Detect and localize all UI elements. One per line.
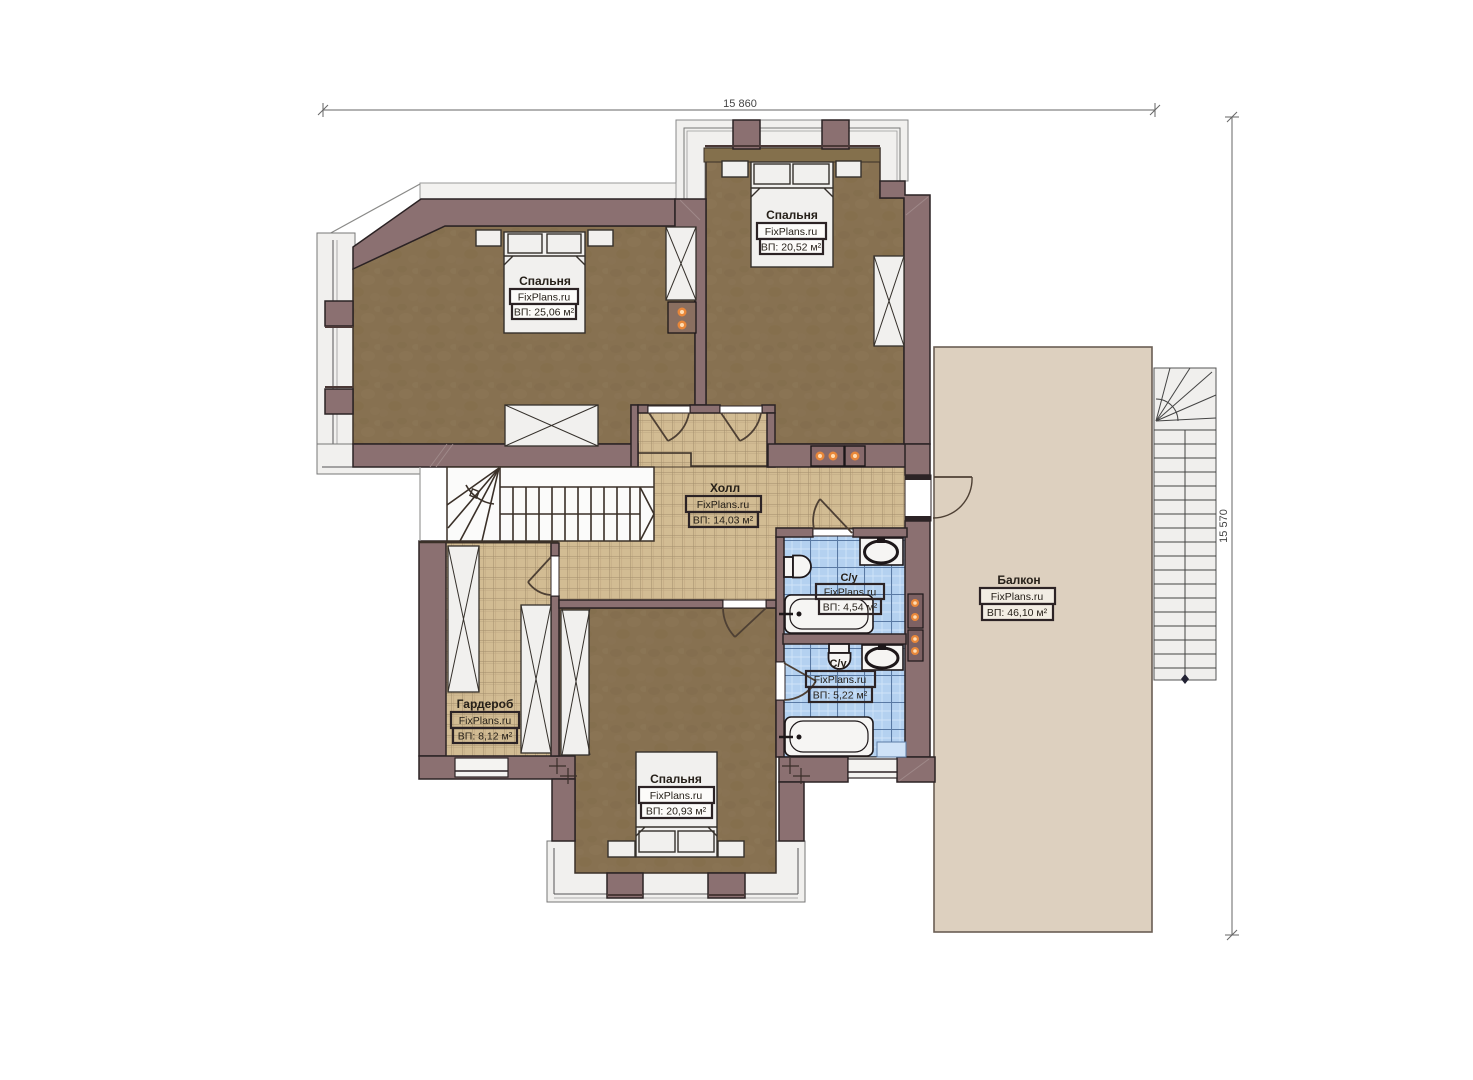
svg-text:Холл: Холл <box>710 481 740 495</box>
svg-text:ВП: 20,93 м²: ВП: 20,93 м² <box>646 806 707 818</box>
svg-text:FixPlans.ru: FixPlans.ru <box>765 226 818 238</box>
svg-text:FixPlans.ru: FixPlans.ru <box>991 591 1044 603</box>
svg-text:Спальня: Спальня <box>519 274 571 288</box>
svg-text:ВП: 14,03 м²: ВП: 14,03 м² <box>693 515 754 527</box>
svg-text:С/у: С/у <box>840 572 858 584</box>
svg-text:ВП: 5,22 м²: ВП: 5,22 м² <box>813 690 868 702</box>
svg-text:Спальня: Спальня <box>650 772 702 786</box>
svg-text:15 860: 15 860 <box>723 98 757 110</box>
svg-text:FixPlans.ru: FixPlans.ru <box>814 674 867 686</box>
svg-text:ВП: 20,52 м²: ВП: 20,52 м² <box>761 242 822 254</box>
svg-text:FixPlans.ru: FixPlans.ru <box>697 499 750 511</box>
svg-text:ВП: 4,54 м²: ВП: 4,54 м² <box>823 602 878 614</box>
svg-text:Гардероб: Гардероб <box>457 697 514 711</box>
svg-text:FixPlans.ru: FixPlans.ru <box>459 715 512 727</box>
svg-text:ВП: 25,06 м²: ВП: 25,06 м² <box>514 307 575 319</box>
svg-text:Спальня: Спальня <box>766 208 818 222</box>
svg-text:ВП: 46,10 м²: ВП: 46,10 м² <box>987 607 1048 619</box>
svg-text:Балкон: Балкон <box>997 573 1040 587</box>
svg-text:ВП: 8,12 м²: ВП: 8,12 м² <box>458 731 513 743</box>
svg-text:С/у: С/у <box>829 658 847 670</box>
svg-text:FixPlans.ru: FixPlans.ru <box>518 292 571 304</box>
svg-text:FixPlans.ru: FixPlans.ru <box>824 587 877 599</box>
svg-text:15 570: 15 570 <box>1218 509 1230 543</box>
svg-text:FixPlans.ru: FixPlans.ru <box>650 790 703 802</box>
